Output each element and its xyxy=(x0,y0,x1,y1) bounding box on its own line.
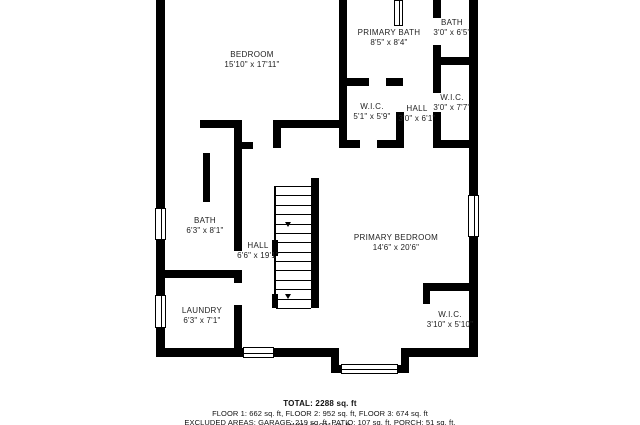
room-dimensions: 6'3" x 7'1" xyxy=(182,316,222,326)
room-dimensions: 14'6" x 20'6" xyxy=(354,243,438,253)
room-dimensions: 6'3" x 8'1" xyxy=(186,226,223,236)
room-name: LAUNDRY xyxy=(182,306,222,316)
room-dimensions: 6'6" x 19'1" xyxy=(237,251,279,261)
room-name: PRIMARY BEDROOM xyxy=(354,233,438,243)
room-label-hall-main: HALL6'6" x 19'1" xyxy=(237,241,279,261)
room-label-primary-bath: PRIMARY BATH8'5" x 8'4" xyxy=(358,28,421,48)
room-label-wic-lower: W.I.C.3'10" x 5'10" xyxy=(427,310,473,330)
area-summary: TOTAL: 2288 sq. ft FLOOR 1: 662 sq. ft, … xyxy=(0,398,640,425)
room-dimensions: 3'0" x 7'7" xyxy=(433,103,470,113)
room-label-wic-right: W.I.C.3'0" x 7'7" xyxy=(433,93,470,113)
total-area-text: TOTAL: 2288 sq. ft xyxy=(0,398,640,409)
room-dimensions: 15'10" x 17'11" xyxy=(224,60,279,70)
room-name: BEDROOM xyxy=(224,50,279,60)
room-name: BATH xyxy=(186,216,223,226)
floor-plan: BEDROOM15'10" x 17'11"PRIMARY BATH8'5" x… xyxy=(0,0,640,425)
clipped-footer-text: WALLS: 231 sq. ft xyxy=(0,421,640,425)
room-dimensions: 8'5" x 8'4" xyxy=(358,38,421,48)
room-dimensions: 3'10" x 5'10" xyxy=(427,320,473,330)
room-name: BATH xyxy=(433,18,470,28)
floor-areas-text: FLOOR 1: 662 sq. ft, FLOOR 2: 952 sq. ft… xyxy=(0,409,640,418)
room-name: HALL xyxy=(237,241,279,251)
room-name: W.I.C. xyxy=(433,93,470,103)
room-name: HALL xyxy=(398,104,435,114)
room-labels-layer: BEDROOM15'10" x 17'11"PRIMARY BATH8'5" x… xyxy=(0,0,640,425)
room-dimensions: 5'1" x 5'9" xyxy=(353,112,390,122)
room-label-bath-left: BATH6'3" x 8'1" xyxy=(186,216,223,236)
room-label-bath-upper: BATH3'0" x 6'5" xyxy=(433,18,470,38)
room-dimensions: 3'0" x 6'5" xyxy=(433,28,470,38)
room-label-hall-upper: HALL3'0" x 6'1" xyxy=(398,104,435,124)
room-label-wic-primary: W.I.C.5'1" x 5'9" xyxy=(353,102,390,122)
room-name: PRIMARY BATH xyxy=(358,28,421,38)
room-name: W.I.C. xyxy=(427,310,473,320)
room-label-primary-bedroom: PRIMARY BEDROOM14'6" x 20'6" xyxy=(354,233,438,253)
room-name: W.I.C. xyxy=(353,102,390,112)
room-label-bedroom: BEDROOM15'10" x 17'11" xyxy=(224,50,279,70)
room-dimensions: 3'0" x 6'1" xyxy=(398,114,435,124)
room-label-laundry: LAUNDRY6'3" x 7'1" xyxy=(182,306,222,326)
